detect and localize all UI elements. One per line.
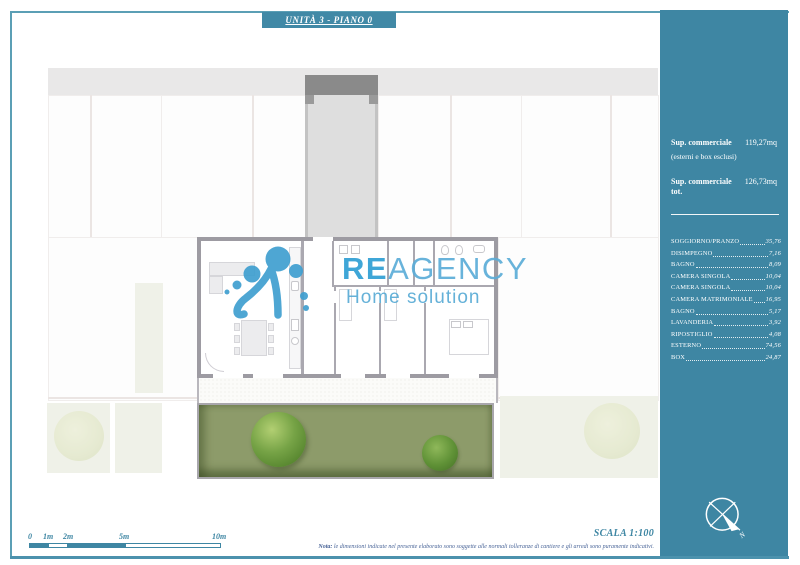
door-opening	[334, 291, 336, 303]
paved-strip	[197, 378, 498, 403]
pillow	[451, 321, 461, 328]
chair	[268, 335, 274, 343]
chair	[268, 347, 274, 355]
room-name: BAGNO	[671, 306, 695, 318]
sink-icon	[291, 281, 299, 291]
room-area: 7,16	[769, 248, 781, 260]
room-area: 24,87	[766, 352, 781, 364]
scale-bar-segment	[29, 543, 48, 548]
chair	[234, 335, 240, 343]
total-value: 126,73mq	[745, 177, 777, 197]
room-row: BAGNO8,09	[671, 259, 781, 271]
footnote-label: Nota:	[318, 544, 332, 550]
scale-label: 5m	[119, 532, 129, 541]
faded-tree-icon	[54, 411, 104, 461]
scale-label: 1m	[43, 532, 53, 541]
background-wall	[610, 95, 612, 237]
background-room	[498, 237, 659, 401]
room-row: BAGNO5,17	[671, 306, 781, 318]
compass-icon: N	[696, 490, 754, 546]
background-room	[161, 95, 306, 239]
sofa	[209, 276, 223, 294]
room-row: ESTERNO74,56	[671, 340, 781, 352]
dotted-leader	[714, 337, 768, 338]
dining-table	[241, 320, 267, 356]
room-area: 3,92	[769, 317, 781, 329]
dotted-leader	[686, 360, 765, 361]
oven-icon	[291, 337, 299, 345]
sidebar-info-panel: Sup. commerciale 119,27mq (esterni e box…	[660, 10, 788, 556]
room-row: LAVANDERIA3,92	[671, 317, 781, 329]
garage-box-footprint	[305, 75, 378, 95]
scale-bar-segment	[68, 543, 125, 548]
door-swing-arc	[205, 353, 224, 372]
room-name: DISIMPEGNO	[671, 248, 712, 260]
room-area: 4,08	[769, 329, 781, 341]
washbasin-icon	[473, 245, 485, 253]
room-area: 35,76	[766, 236, 781, 248]
floor-plan-sheet: REAGENCY Home solution UNITÀ 3 - PIANO 0…	[0, 0, 800, 565]
faded-tree-icon	[584, 403, 640, 459]
dotted-leader	[731, 290, 764, 291]
room-name: CAMERA SINGOLA	[671, 271, 730, 283]
room-area: 10,04	[766, 271, 781, 283]
tree-icon	[251, 412, 306, 467]
dotted-leader	[696, 314, 768, 315]
room-row: DISIMPEGNO7,16	[671, 248, 781, 260]
interior-wall	[332, 241, 334, 285]
footnote: Nota: le dimensioni indicate nel present…	[318, 544, 654, 550]
summary-label: Sup. commerciale	[671, 138, 732, 148]
interior-wall	[387, 241, 389, 285]
hob-icon	[291, 319, 299, 331]
unit-title-tab: UNITÀ 3 - PIANO 0	[262, 12, 396, 28]
room-area-list: SOGGIORNO/PRANZO35,76 DISIMPEGNO7,16 BAG…	[671, 236, 781, 364]
room-name: LAVANDERIA	[671, 317, 713, 329]
room-area: 8,09	[769, 259, 781, 271]
faded-courtyard-strip	[135, 283, 163, 393]
chair	[268, 323, 274, 331]
washer-icon	[351, 245, 360, 254]
room-area: 16,95	[766, 294, 781, 306]
kitchen-counter	[289, 247, 301, 369]
dotted-leader	[731, 279, 764, 280]
interior-wall	[413, 241, 415, 285]
interior-wall	[433, 241, 435, 285]
page-title: UNITÀ 3 - PIANO 0	[285, 15, 372, 25]
room-name: CAMERA MATRIMONIALE	[671, 294, 753, 306]
entrance-opening	[313, 237, 333, 241]
background-wall	[252, 95, 254, 237]
footnote-text: le dimensioni indicate nel presente elab…	[332, 544, 654, 550]
single-bed	[339, 289, 352, 321]
dotted-leader	[713, 256, 768, 257]
scale-label: 0	[28, 532, 32, 541]
room-row: CAMERA SINGOLA10,04	[671, 282, 781, 294]
door-opening	[379, 291, 381, 303]
chair	[234, 323, 240, 331]
background-room	[48, 95, 162, 239]
pillow	[463, 321, 473, 328]
room-row: CAMERA MATRIMONIALE16,95	[671, 294, 781, 306]
room-name: BOX	[671, 352, 685, 364]
dotted-leader	[696, 267, 768, 268]
tree-icon	[422, 435, 458, 471]
bidet-icon	[455, 245, 463, 255]
background-wall	[450, 95, 452, 237]
scale-bar-segment	[125, 543, 221, 548]
summary-value: 119,27mq	[745, 138, 777, 148]
room-name: SOGGIORNO/PRANZO	[671, 236, 739, 248]
interior-wall	[301, 241, 304, 374]
single-bed	[384, 289, 397, 321]
frame-bottom-line	[10, 556, 789, 559]
room-row: SOGGIORNO/PRANZO35,76	[671, 236, 781, 248]
wall-stub	[369, 95, 378, 104]
unit-outline	[197, 237, 498, 378]
scale-text: SCALA 1:100	[594, 528, 654, 539]
scale-bar-segment	[48, 543, 68, 548]
door-opening	[424, 291, 426, 303]
total-label: Sup. commerciale tot.	[671, 177, 745, 197]
background-wall	[90, 95, 92, 237]
faded-garden-left2	[115, 403, 162, 473]
interior-wall	[332, 285, 494, 287]
summary-note: (esterni e box esclusi)	[671, 152, 777, 161]
room-name: ESTERNO	[671, 340, 701, 352]
background-room	[48, 237, 199, 401]
room-name: RIPOSTIGLIO	[671, 329, 713, 341]
room-row: BOX24,87	[671, 352, 781, 364]
toilet-icon	[441, 245, 449, 255]
scale-label: 10m	[212, 532, 226, 541]
dotted-leader	[740, 244, 764, 245]
room-row: RIPOSTIGLIO4,08	[671, 329, 781, 341]
dotted-leader	[714, 325, 768, 326]
washer-icon	[339, 245, 348, 254]
sofa	[209, 262, 255, 276]
room-area: 5,17	[769, 306, 781, 318]
north-label: N	[737, 529, 748, 540]
dotted-leader	[754, 302, 765, 303]
room-area: 74,56	[766, 340, 781, 352]
wall-stub	[305, 95, 314, 104]
room-name: BAGNO	[671, 259, 695, 271]
room-name: CAMERA SINGOLA	[671, 282, 730, 294]
scale-label: 2m	[63, 532, 73, 541]
chair	[234, 347, 240, 355]
room-area: 10,04	[766, 282, 781, 294]
room-row: CAMERA SINGOLA10,04	[671, 271, 781, 283]
sidebar-divider	[671, 214, 779, 215]
access-corridor	[305, 95, 378, 237]
surface-summary: Sup. commerciale 119,27mq (esterni e box…	[671, 138, 777, 197]
background-room	[521, 95, 659, 239]
dotted-leader	[702, 348, 764, 349]
